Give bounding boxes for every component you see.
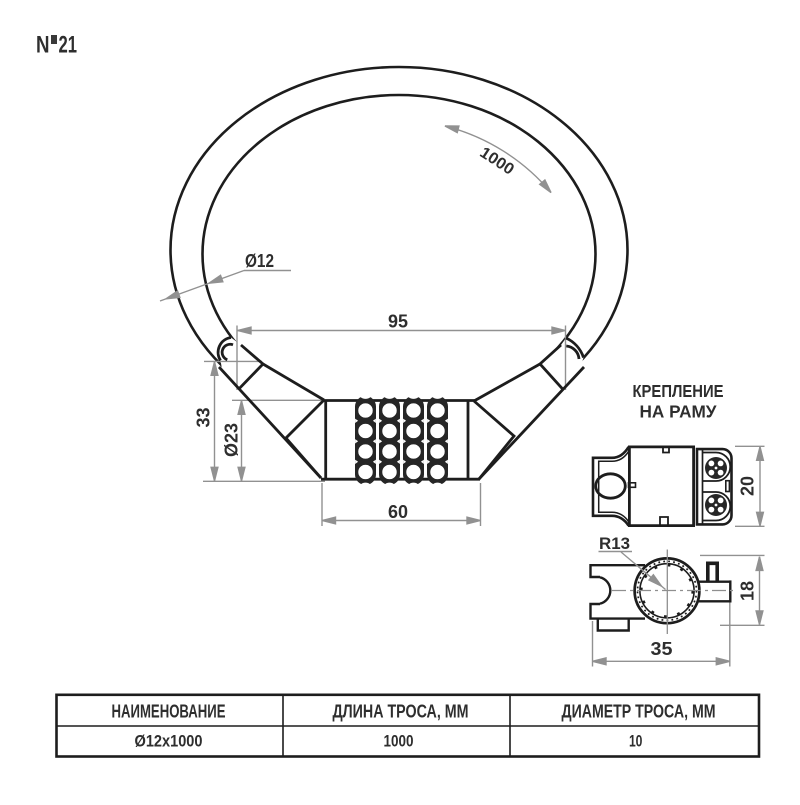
svg-text:ДЛИНА ТРОСА, ММ: ДЛИНА ТРОСА, ММ: [333, 702, 469, 722]
svg-text:10: 10: [629, 731, 643, 750]
svg-text:95: 95: [388, 312, 408, 332]
svg-text:ДИАМЕТР ТРОСА, ММ: ДИАМЕТР ТРОСА, ММ: [562, 702, 716, 722]
svg-text:18: 18: [738, 581, 758, 601]
svg-text:R13: R13: [599, 535, 630, 553]
svg-text:КРЕПЛЕНИЕ: КРЕПЛЕНИЕ: [633, 381, 724, 401]
svg-text:НА РАМУ: НА РАМУ: [640, 402, 718, 422]
svg-text:20: 20: [738, 476, 758, 496]
svg-text:60: 60: [388, 502, 408, 522]
svg-text:НАИМЕНОВАНИЕ: НАИМЕНОВАНИЕ: [112, 702, 226, 722]
svg-text:21: 21: [59, 32, 78, 59]
svg-text:1000: 1000: [384, 731, 414, 750]
svg-text:33: 33: [194, 408, 214, 428]
svg-text:Ø12: Ø12: [245, 251, 274, 271]
svg-text:35: 35: [651, 639, 673, 659]
svg-text:Ø12x1000: Ø12x1000: [135, 731, 203, 750]
svg-text:Ø23: Ø23: [222, 423, 242, 457]
svg-text:N: N: [36, 32, 50, 59]
